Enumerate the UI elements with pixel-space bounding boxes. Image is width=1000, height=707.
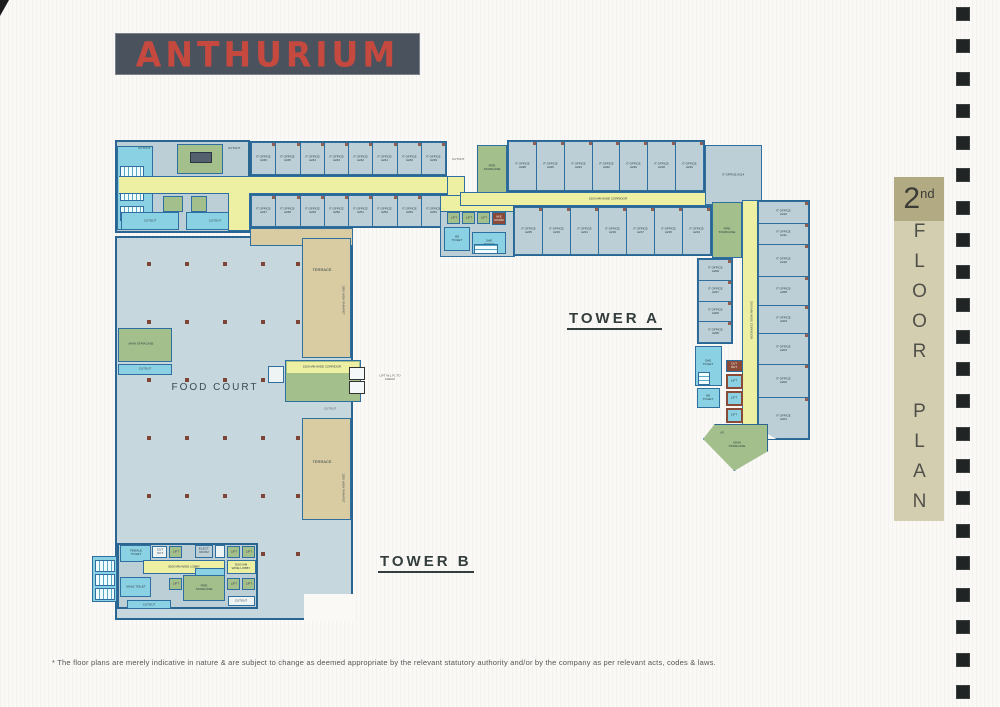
up-label: UP: [720, 431, 724, 434]
film-strip-square: [957, 557, 969, 569]
room-label: IT OFFICE A214: [722, 173, 744, 176]
column-marker: [296, 262, 300, 266]
room-label: IT OFFICEA210: [776, 257, 790, 264]
office-room: IT OFFICEA248: [276, 195, 300, 227]
room-label: IT OFFICEA225: [521, 228, 535, 235]
upper-parapet-label: 1200 HIGH PARAPET: [342, 285, 345, 315]
room-label: IT OFFICEA209: [708, 267, 722, 274]
lift-label: LIFT: [231, 550, 237, 553]
lift-label: LIFT: [173, 582, 179, 585]
room-label: IT OFFICEA222: [599, 163, 613, 170]
room-label: IT OFFICEA218: [655, 163, 669, 170]
film-strip-square: [957, 73, 969, 85]
office-room: IT OFFICEA228: [508, 141, 537, 191]
room-label: IT OFFICEA202: [776, 378, 790, 385]
lift-label: LIFT: [451, 216, 457, 219]
cutout-label: CUTOUT: [144, 219, 156, 222]
mid-corridor-label: 1500 MM WIDE CORRIDOR: [303, 365, 341, 368]
elect-room-label: ELECT. ROOM: [198, 548, 211, 555]
he-toilet-label: HE TOILET: [701, 395, 715, 402]
room-label: IT OFFICEA250: [329, 208, 343, 215]
cutout-label: CUTOUT: [228, 147, 240, 150]
office-room: IT OFFICEA240: [398, 142, 422, 175]
room-label: IT OFFICEA239: [426, 155, 440, 162]
main-staircase-label: MAIN STAIRCASE: [726, 442, 748, 449]
office-room: IT OFFICEA225: [514, 207, 543, 255]
office-room: IT OFFICEA250: [325, 195, 349, 227]
lift-label: LIFT: [231, 582, 237, 585]
food-court-label: FOOD COURT: [150, 382, 280, 393]
film-strip-square: [957, 395, 969, 407]
film-strip-square: [957, 525, 969, 537]
fire-staircase-label: FIRE STAIRCASE: [484, 165, 501, 172]
room-label: IT OFFICEA246: [256, 155, 270, 162]
office-room: IT OFFICEA204: [758, 306, 809, 334]
he-toilet-label: HE TOILET: [450, 236, 465, 243]
room-label: IT OFFICEA253: [402, 208, 416, 215]
she-toilet-label: SHE TOILET: [701, 360, 715, 367]
lift-label: LIFT: [246, 550, 252, 553]
lift-note: LIFT W.L FL TO CHECK: [379, 375, 401, 382]
column-marker: [223, 494, 227, 498]
lift-label: LIFT: [173, 550, 179, 553]
toilet-stalls: [95, 588, 115, 600]
column-marker: [296, 552, 300, 556]
floor-number-tab: 2nd: [894, 177, 944, 221]
lift-symbol: [349, 367, 365, 380]
room-label: IT OFFICEA240: [402, 155, 416, 162]
office-room: IT OFFICEA208: [758, 277, 809, 307]
toilet-stalls: [698, 372, 710, 385]
office-room: IT OFFICEA212: [758, 201, 809, 224]
office-room: IT OFFICEA209: [698, 259, 732, 281]
room-label: IT OFFICEA217: [633, 228, 647, 235]
brand-logo: ANTHURIUM: [115, 33, 420, 75]
brand-logo-text: ANTHURIUM: [136, 34, 399, 75]
table-icon: [190, 152, 212, 163]
column-marker: [147, 262, 151, 266]
cutout-shaft-label: CUT OUT: [728, 363, 740, 370]
film-strip: [957, 8, 970, 698]
film-strip-square: [957, 589, 969, 601]
office-room: IT OFFICEA252: [373, 195, 397, 227]
office-room: IT OFFICEA206: [698, 302, 732, 323]
cutout-label: CUTOUT: [139, 367, 151, 370]
office-room: IT OFFICEA205: [698, 322, 732, 343]
column-marker: [261, 320, 265, 324]
film-strip-square: [957, 299, 969, 311]
lobby-3000-label: 3000 MM WIDE LOBBY: [231, 564, 251, 571]
office-room: IT OFFICEA239: [422, 142, 446, 175]
office-room-wide: IT OFFICE A214: [705, 145, 762, 205]
building-notch: [304, 594, 355, 621]
office-room: IT OFFICEA244: [301, 142, 325, 175]
cutout-room: [215, 545, 225, 558]
room-label: IT OFFICEA201: [776, 415, 790, 422]
office-room: IT OFFICEA211: [758, 224, 809, 245]
film-strip-square: [957, 266, 969, 278]
film-strip-square: [957, 105, 969, 117]
corridor-label: 1500 MM WIDE CORRIDOR: [589, 197, 627, 200]
room-label: IT OFFICEA228: [515, 163, 529, 170]
film-strip-square: [957, 363, 969, 375]
toilet-stalls: [95, 574, 115, 586]
cutout-label: CUTOUT: [452, 158, 464, 161]
room-label: IT OFFICEA211: [776, 231, 790, 238]
me-room-label: M.E ROOM: [494, 216, 505, 223]
column-marker: [223, 262, 227, 266]
room-label: IT OFFICEA241: [378, 155, 392, 162]
cutout-room-label: CUT OUT: [154, 549, 166, 556]
office-room: IT OFFICEA213: [683, 207, 711, 255]
column-marker: [261, 552, 265, 556]
office-room: IT OFFICEA243: [325, 142, 349, 175]
disclaimer-text: * The floor plans are merely indicative …: [52, 658, 716, 667]
lower-terrace: [302, 418, 351, 520]
mid-wing-bottom-row: IT OFFICEA247IT OFFICEA248IT OFFICEA249I…: [250, 194, 447, 228]
column-marker: [261, 494, 265, 498]
pathway-box: [268, 366, 284, 383]
room-label: IT OFFICEA208: [776, 288, 790, 295]
film-strip-square: [957, 686, 969, 698]
column-marker: [296, 436, 300, 440]
film-strip-square: [957, 331, 969, 343]
office-room: IT OFFICEA216: [676, 141, 704, 191]
column-marker: [223, 436, 227, 440]
service-room: [191, 196, 207, 212]
column-marker: [223, 320, 227, 324]
office-room: IT OFFICEA207: [698, 281, 732, 302]
room-label: IT OFFICEA215: [661, 228, 675, 235]
room-label: IT OFFICEA243: [329, 155, 343, 162]
film-strip-square: [957, 8, 969, 20]
fire-staircase-label: FIRE STAIRCASE: [719, 228, 736, 235]
column-marker: [185, 320, 189, 324]
film-strip-square: [957, 428, 969, 440]
room-label: IT OFFICEA252: [378, 208, 392, 215]
office-room: IT OFFICEA221: [571, 207, 599, 255]
column-marker: [185, 494, 189, 498]
office-room: IT OFFICEA219: [599, 207, 627, 255]
corridor-branch: [228, 193, 250, 231]
room-label: IT OFFICEA213: [689, 228, 703, 235]
office-room: IT OFFICEA202: [758, 365, 809, 397]
lift-label: LIFT: [731, 413, 737, 416]
fire-staircase-label: FIRE STAIRCASE: [193, 585, 215, 592]
column-marker: [261, 262, 265, 266]
office-room: IT OFFICEA242: [349, 142, 373, 175]
cutout-label: CUTOUT: [324, 407, 336, 410]
room-label: IT OFFICEA205: [708, 329, 722, 336]
room-label: IT OFFICEA245: [281, 155, 295, 162]
column-marker: [147, 320, 151, 324]
office-room: IT OFFICEA222: [593, 141, 621, 191]
room-label: IT OFFICEA242: [353, 155, 367, 162]
scanned-floor-plan-page: ANTHURIUM 2nd FLOOR PLAN TERRACE 1200 HI…: [0, 0, 1000, 707]
film-strip-square: [957, 621, 969, 633]
office-room: IT OFFICEA224: [565, 141, 593, 191]
office-room: IT OFFICEA246: [251, 142, 276, 175]
cutout-label: CUTOUT: [209, 219, 221, 222]
office-room: IT OFFICEA249: [301, 195, 325, 227]
office-room: IT OFFICEA203: [758, 334, 809, 366]
lift-symbol: [349, 381, 365, 394]
office-room: IT OFFICEA215: [655, 207, 683, 255]
floor-plan-tab: FLOOR PLAN: [894, 221, 944, 521]
service-room: [163, 196, 183, 212]
tower-b-label: TOWER B: [378, 553, 474, 573]
office-room: IT OFFICEA251: [349, 195, 373, 227]
office-room: IT OFFICEA210: [758, 245, 809, 277]
office-room: IT OFFICEA220: [620, 141, 648, 191]
column-marker: [147, 494, 151, 498]
upper-terrace-label: TERRACE: [312, 268, 331, 272]
cutout-label: CUTOUT: [138, 147, 150, 150]
tower-a-arm-left-column: IT OFFICEA209IT OFFICEA207IT OFFICEA206I…: [697, 258, 733, 344]
column-marker: [147, 436, 151, 440]
room-label: IT OFFICEA212: [776, 209, 790, 216]
male-toilet-label: MALE TOILET: [125, 585, 147, 588]
tower-a-arm-right-column: IT OFFICEA212IT OFFICEA211IT OFFICEA210I…: [757, 200, 810, 440]
main-corridor: [119, 176, 464, 194]
film-strip-square: [957, 492, 969, 504]
room-label: IT OFFICEA204: [776, 316, 790, 323]
office-room: IT OFFICEA247: [251, 195, 276, 227]
film-strip-square: [957, 654, 969, 666]
column-marker: [261, 436, 265, 440]
tower-a-top-row: IT OFFICEA228IT OFFICEA226IT OFFICEA224I…: [507, 140, 705, 192]
office-room: IT OFFICEA226: [537, 141, 565, 191]
room-label: IT OFFICEA224: [571, 163, 585, 170]
floor-number: 2: [903, 184, 920, 214]
room-label: IT OFFICEA220: [627, 163, 641, 170]
room-label: IT OFFICEA247: [256, 208, 270, 215]
room-label: IT OFFICEA207: [708, 287, 722, 294]
office-room: IT OFFICEA218: [648, 141, 676, 191]
office-room: IT OFFICEA223: [543, 207, 571, 255]
tower-b-main-staircase-label: MAIN STAIRCASE: [126, 342, 156, 345]
lower-terrace-label: TERRACE: [312, 460, 331, 464]
film-strip-square: [957, 137, 969, 149]
lift-label: LIFT: [731, 396, 737, 399]
vertical-corridor-label: 1500 MM WIDE CORRIDOR: [750, 301, 753, 339]
film-strip-square: [957, 169, 969, 181]
floor-plan-tab-text: FLOOR PLAN: [908, 221, 930, 521]
lift-label: LIFT: [466, 216, 472, 219]
female-toilet-label: FEMALE TOILET: [125, 550, 148, 557]
office-room: IT OFFICEA253: [398, 195, 422, 227]
room-label: IT OFFICEA251: [353, 208, 367, 215]
room-label: IT OFFICEA254: [426, 208, 440, 215]
tower-a-bottom-row: IT OFFICEA225IT OFFICEA223IT OFFICEA221I…: [513, 206, 712, 256]
office-room: IT OFFICEA241: [373, 142, 397, 175]
scan-artifact: [0, 0, 9, 16]
column-marker: [296, 494, 300, 498]
room-label: IT OFFICEA216: [682, 163, 696, 170]
room-label: IT OFFICEA248: [281, 208, 295, 215]
room-label: IT OFFICEA249: [305, 208, 319, 215]
lower-parapet-label: 1200 HIGH PARAPET: [342, 473, 345, 503]
room-label: IT OFFICEA221: [577, 228, 591, 235]
cutout-label: CUTOUT: [143, 603, 155, 606]
room-label: IT OFFICEA244: [305, 155, 319, 162]
film-strip-square: [957, 202, 969, 214]
toilet-stalls: [95, 560, 115, 572]
floor-number-suffix: nd: [920, 187, 934, 200]
room-label: IT OFFICEA203: [776, 346, 790, 353]
office-room: IT OFFICEA217: [627, 207, 655, 255]
film-strip-square: [957, 460, 969, 472]
lift-label: LIFT: [731, 379, 737, 382]
column-marker: [185, 436, 189, 440]
toilet-stalls: [474, 244, 498, 254]
room-label: IT OFFICEA226: [543, 163, 557, 170]
film-strip-square: [957, 234, 969, 246]
film-strip-square: [957, 40, 969, 52]
room-label: IT OFFICEA206: [708, 308, 722, 315]
room-label: IT OFFICEA223: [549, 228, 563, 235]
cutout-label: CUTOUT: [235, 599, 247, 602]
column-marker: [185, 262, 189, 266]
office-room: IT OFFICEA245: [276, 142, 300, 175]
tower-a-label: TOWER A: [567, 310, 662, 330]
room-label: IT OFFICEA219: [605, 228, 619, 235]
mid-wing-top-row: IT OFFICEA246IT OFFICEA245IT OFFICEA244I…: [250, 141, 447, 176]
lift-label: LIFT: [481, 216, 487, 219]
column-marker: [296, 320, 300, 324]
lift-label: LIFT: [246, 582, 252, 585]
